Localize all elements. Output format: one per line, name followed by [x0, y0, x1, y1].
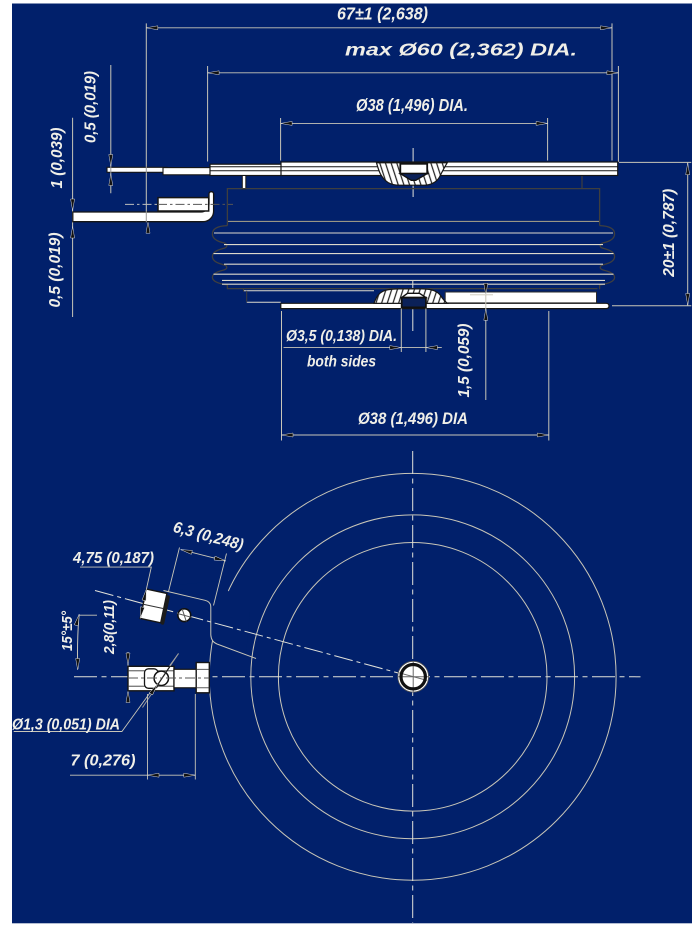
svg-text:Ø38 (1,496) DIA: Ø38 (1,496) DIA: [358, 409, 468, 428]
svg-text:1 (0,039): 1 (0,039): [49, 128, 66, 189]
svg-text:Ø3,5 (0,138) DIA.: Ø3,5 (0,138) DIA.: [286, 328, 397, 345]
svg-text:20±1 (0,787): 20±1 (0,787): [661, 189, 678, 278]
svg-text:2,8(0,11): 2,8(0,11): [102, 600, 118, 655]
svg-text:Ø1,3 (0,051) DIA: Ø1,3 (0,051) DIA: [12, 717, 120, 734]
svg-text:Ø38 (1,496) DIA.: Ø38 (1,496) DIA.: [356, 95, 468, 115]
svg-text:both sides: both sides: [307, 353, 376, 370]
svg-text:0,5 (0,019): 0,5 (0,019): [83, 71, 100, 143]
svg-text:67±1 (2,638): 67±1 (2,638): [337, 4, 428, 24]
svg-text:0,5 (0,019): 0,5 (0,019): [47, 233, 64, 308]
svg-text:1,5 (0,059): 1,5 (0,059): [456, 324, 473, 398]
svg-text:max Ø60 (2,362) DIA.: max Ø60 (2,362) DIA.: [345, 40, 577, 60]
svg-text:7 (0,276): 7 (0,276): [71, 753, 136, 770]
svg-text:4,75 (0,187): 4,75 (0,187): [72, 550, 154, 567]
svg-text:15°±5°: 15°±5°: [60, 611, 76, 651]
